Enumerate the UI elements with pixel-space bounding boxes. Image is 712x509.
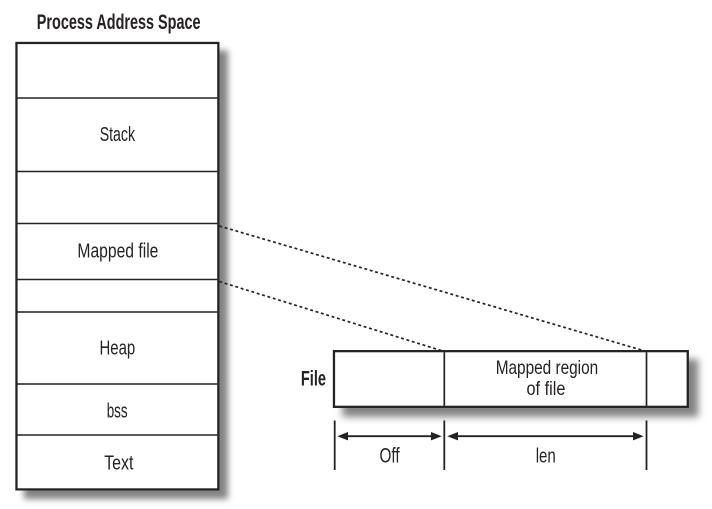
svg-text:len: len (536, 445, 556, 467)
svg-text:Mapped file: Mapped file (77, 240, 158, 263)
svg-text:Stack: Stack (100, 123, 136, 146)
svg-text:Text: Text (104, 451, 134, 474)
svg-text:File: File (301, 368, 326, 391)
svg-text:Heap: Heap (100, 337, 136, 360)
svg-text:of file: of file (527, 378, 566, 400)
svg-text:Process Address Space: Process Address Space (37, 11, 201, 34)
svg-text:Off: Off (380, 444, 400, 467)
svg-text:bss: bss (107, 400, 128, 423)
svg-text:Mapped region: Mapped region (496, 357, 599, 379)
